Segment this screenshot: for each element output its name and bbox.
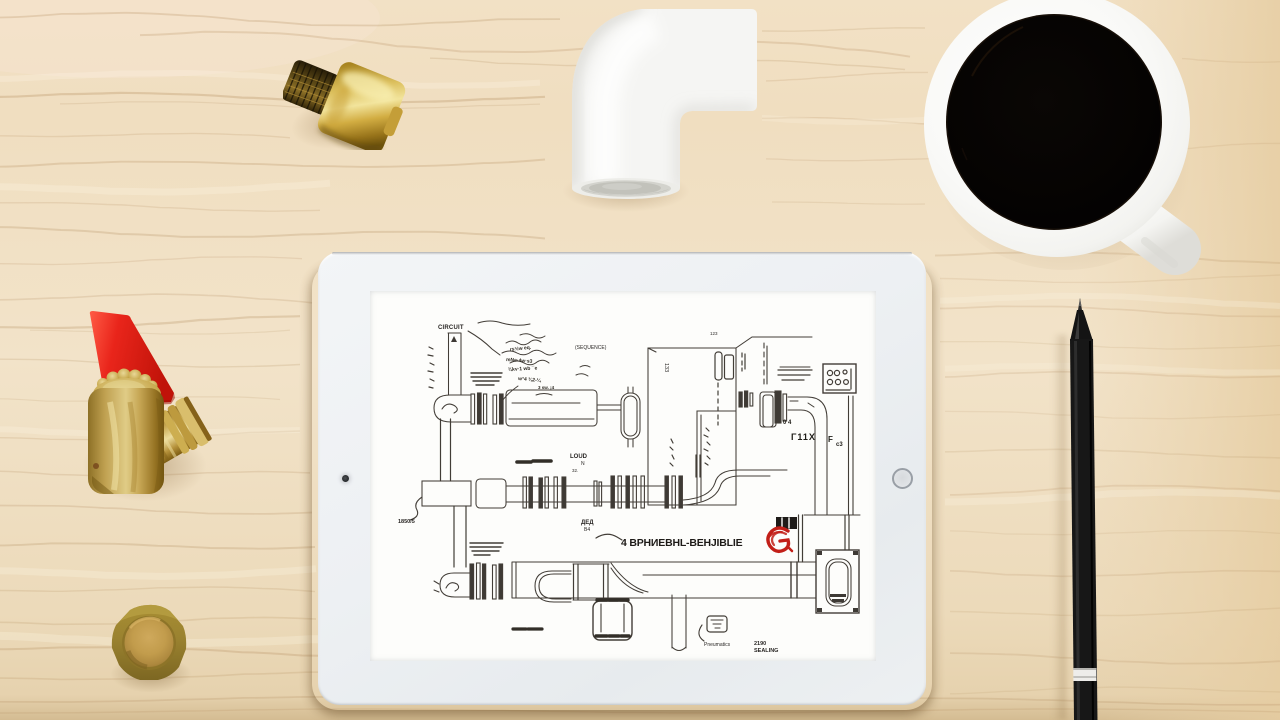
svg-text:CIRCUIT: CIRCUIT: [438, 325, 464, 331]
svg-text:123: 123: [710, 331, 718, 336]
svg-text:133: 133: [663, 363, 669, 372]
svg-text:ДЕД: ДЕД: [581, 520, 594, 526]
svg-text:32.: 32.: [572, 468, 578, 473]
svg-text:SEALING: SEALING: [754, 648, 778, 654]
svg-text:1850/5: 1850/5: [398, 519, 415, 525]
svg-text:rs½w eq.: rs½w eq.: [509, 344, 532, 353]
svg-text:N: N: [581, 461, 585, 467]
svg-text:w°4 ¾2-¼: w°4 ¾2-¼: [517, 375, 542, 384]
svg-text:0 4: 0 4: [783, 420, 792, 426]
svg-text:4 ВРНИЕВНL-ВЕНЈIВLIЕ: 4 ВРНИЕВНL-ВЕНЈIВLIЕ: [621, 537, 743, 549]
svg-text:c3: c3: [836, 442, 843, 448]
svg-text:3 sw. ¡4: 3 sw. ¡4: [538, 385, 555, 390]
svg-text:(SEQUENCE): (SEQUENCE): [575, 345, 607, 351]
svg-text:B4: B4: [584, 527, 590, 533]
svg-text:Pneumatics: Pneumatics: [704, 642, 731, 648]
svg-text:Γ11Χ: Γ11Χ: [791, 432, 816, 442]
svg-text:LOUD: LOUD: [570, 454, 588, 460]
svg-text:¾kv·1 wb ¯e: ¾kv·1 wb ¯e: [508, 364, 538, 373]
svg-text:2190: 2190: [754, 641, 766, 647]
svg-text:mNe·4w·s3: mNe·4w·s3: [506, 357, 533, 365]
svg-text:F: F: [828, 435, 833, 444]
